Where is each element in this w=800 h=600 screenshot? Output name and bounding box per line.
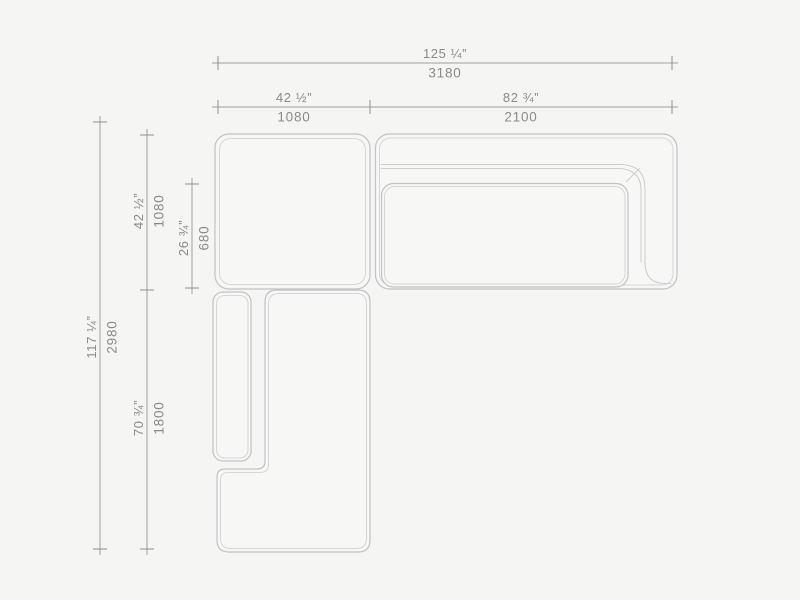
right-sofa-width-inches-label: 82 ¾” <box>503 90 539 105</box>
technical-drawing-canvas: 125 ¼” 3180 42 ½” 1080 82 ¾” 2100 117 ¼” <box>0 0 800 600</box>
dimension-seat-depth: 26 ¾” 680 <box>176 178 212 294</box>
corner-depth-inches-label: 42 ½” <box>131 193 146 229</box>
chaise-depth-inches-label: 70 ¾” <box>131 400 146 436</box>
corner-width-mm-label: 1080 <box>277 110 310 125</box>
overall-depth-mm-label: 2980 <box>105 320 120 353</box>
right-sofa-seat-cushion-outline <box>382 184 629 288</box>
sofa-modules <box>213 134 677 552</box>
sofa-dimension-drawing: 125 ¼” 3180 42 ½” 1080 82 ¾” 2100 117 ¼” <box>0 0 800 600</box>
seat-depth-inches-label: 26 ¾” <box>176 220 191 256</box>
overall-width-mm-label: 3180 <box>428 66 461 81</box>
seat-depth-mm-label: 680 <box>197 226 212 251</box>
chaise-depth-mm-label: 1800 <box>152 401 167 434</box>
corner-module-outline <box>215 134 370 289</box>
dimension-segment-depths: 42 ½” 1080 70 ¾” 1800 <box>131 129 167 555</box>
dimension-overall-width: 125 ¼” 3180 <box>212 46 678 81</box>
dimension-segment-widths: 42 ½” 1080 82 ¾” 2100 <box>212 90 678 125</box>
chaise-armrest-outline <box>213 292 251 461</box>
overall-width-inches-label: 125 ¼” <box>423 46 467 61</box>
dimension-overall-depth: 117 ¼” 2980 <box>84 116 120 555</box>
corner-depth-mm-label: 1080 <box>152 194 167 227</box>
dimension-annotations: 125 ¼” 3180 42 ½” 1080 82 ¾” 2100 117 ¼” <box>84 46 678 555</box>
overall-depth-inches-label: 117 ¼” <box>84 315 99 358</box>
right-sofa-width-mm-label: 2100 <box>504 110 537 125</box>
corner-width-inches-label: 42 ½” <box>276 90 312 105</box>
